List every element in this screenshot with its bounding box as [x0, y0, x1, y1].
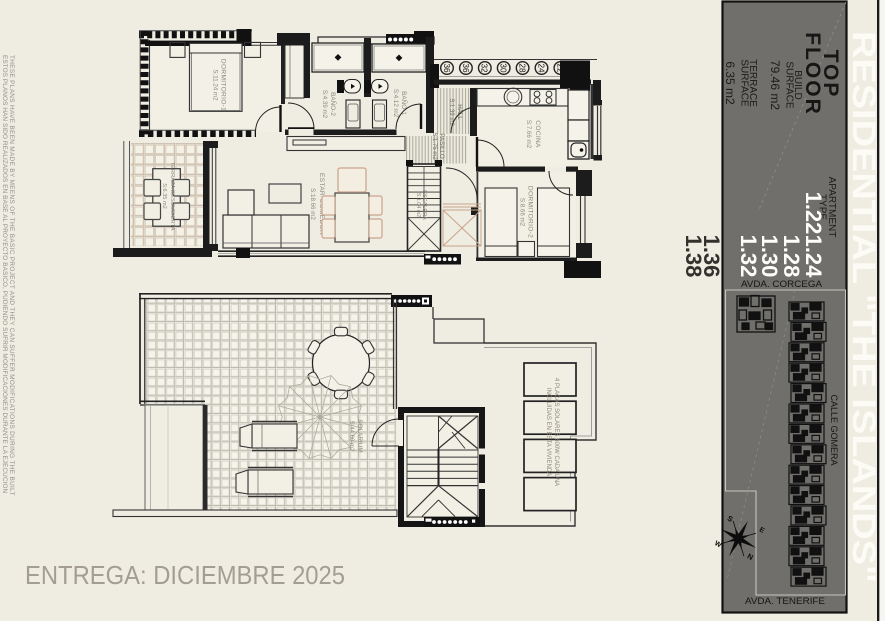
svg-text:6.35 m2: 6.35 m2: [723, 61, 737, 105]
svg-text:S:4.12 m2: S:4.12 m2: [392, 89, 399, 118]
svg-text:SURFACE: SURFACE: [784, 61, 795, 109]
svg-text:28: 28: [518, 63, 527, 73]
svg-text:S:18.66 m2: S:18.66 m2: [309, 188, 316, 220]
svg-text:S:7.66 m2: S:7.66 m2: [525, 120, 532, 149]
svg-text:BAÑO-2: BAÑO-2: [329, 92, 338, 116]
svg-text:36: 36: [442, 63, 451, 73]
svg-text:SOLARIUM: SOLARIUM: [356, 419, 363, 452]
svg-text:INCLUIDAS EN ESTA VIVIENDA: INCLUIDAS EN ESTA VIVIENDA: [545, 388, 551, 476]
svg-text:RESIDENTIAL "THE ISLANDS": RESIDENTIAL "THE ISLANDS": [846, 31, 882, 583]
svg-text:S:44.60 m2: S:44.60 m2: [348, 421, 354, 452]
svg-text:THESE PLANS HAVE BEEN MADE BY: THESE PLANS HAVE BEEN MADE BY MEENS OF T…: [8, 55, 15, 496]
svg-text:36: 36: [461, 63, 470, 73]
svg-text:1.22: 1.22: [801, 192, 826, 235]
svg-text:S:1.04 m2: S:1.04 m2: [415, 193, 421, 218]
svg-text:SURFACE: SURFACE: [739, 59, 750, 107]
svg-text:ENTREGA: DICIEMBRE 2025: ENTREGA: DICIEMBRE 2025: [25, 560, 345, 590]
svg-text:S:1.75 m2: S:1.75 m2: [431, 132, 437, 160]
svg-text:1.38: 1.38: [681, 235, 706, 278]
svg-text:COCINA: COCINA: [534, 120, 541, 148]
svg-text:S:4.39 m2: S:4.39 m2: [321, 90, 328, 119]
svg-text:BAÑO-1: BAÑO-1: [400, 91, 409, 115]
svg-text:DORMITORIO-1: DORMITORIO-1: [220, 59, 227, 111]
svg-text:30: 30: [499, 63, 508, 73]
svg-text:CALLE GOMERA: CALLE GOMERA: [829, 394, 839, 465]
svg-text:24: 24: [536, 63, 545, 73]
svg-text:1.32: 1.32: [736, 235, 761, 278]
svg-text:AVDA. TENERIFE: AVDA. TENERIFE: [745, 596, 825, 606]
svg-text:AVDA. CORCEGA: AVDA. CORCEGA: [741, 279, 822, 289]
svg-text:S:11.24 m2: S:11.24 m2: [212, 69, 219, 101]
svg-text:FLOOR: FLOOR: [801, 32, 824, 116]
svg-text:ESTOS PLANOS HAN SIDO REALIZAD: ESTOS PLANOS HAN SIDO REALIZADOS EN BASE…: [1, 55, 8, 494]
svg-text:S:6.35 m2: S:6.35 m2: [161, 183, 167, 209]
svg-text:TERRAZA DESCUBIERTA: TERRAZA DESCUBIERTA: [169, 161, 175, 230]
svg-text:S:8.66 m2: S:8.66 m2: [519, 198, 526, 227]
svg-text:79.46 m2: 79.46 m2: [768, 60, 782, 110]
svg-text:32: 32: [480, 63, 489, 73]
svg-text:4 PLACAS SOLARES 600W CADA UNA: 4 PLACAS SOLARES 600W CADA UNA: [553, 378, 559, 486]
svg-text:PASILLO: PASILLO: [438, 133, 445, 159]
svg-text:DORMITORIO-2: DORMITORIO-2: [527, 186, 534, 238]
